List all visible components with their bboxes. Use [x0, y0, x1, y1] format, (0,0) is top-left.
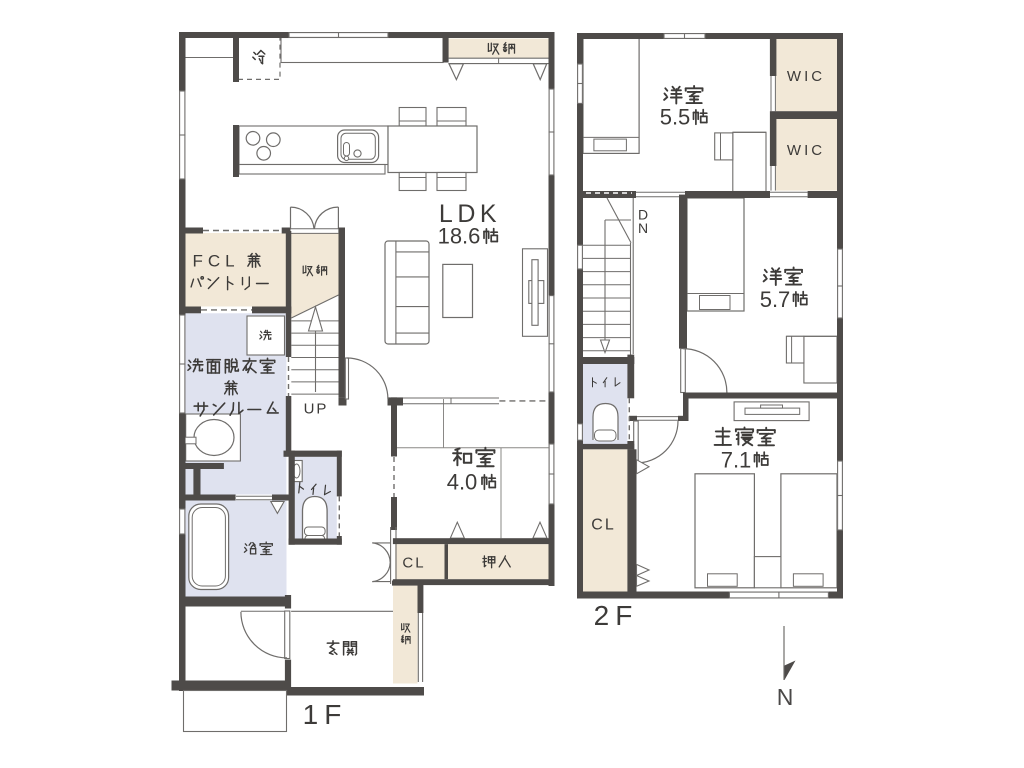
svg-text:FCL: FCL — [192, 252, 239, 271]
svg-text:5.7: 5.7 — [760, 287, 791, 312]
svg-text:7.1: 7.1 — [721, 448, 752, 473]
svg-text:CL: CL — [402, 555, 425, 572]
svg-text:WIC: WIC — [787, 142, 825, 159]
svg-text:18.6: 18.6 — [438, 224, 481, 249]
svg-text:4.0: 4.0 — [447, 470, 478, 495]
svg-text:5.5: 5.5 — [660, 105, 691, 130]
svg-text:WIC: WIC — [787, 68, 825, 85]
svg-text:2F: 2F — [594, 600, 639, 631]
svg-text:1F: 1F — [303, 699, 348, 730]
svg-text:UP: UP — [304, 401, 329, 418]
svg-text:CL: CL — [591, 517, 615, 534]
svg-text:N: N — [777, 684, 794, 710]
svg-text:N: N — [638, 220, 648, 236]
